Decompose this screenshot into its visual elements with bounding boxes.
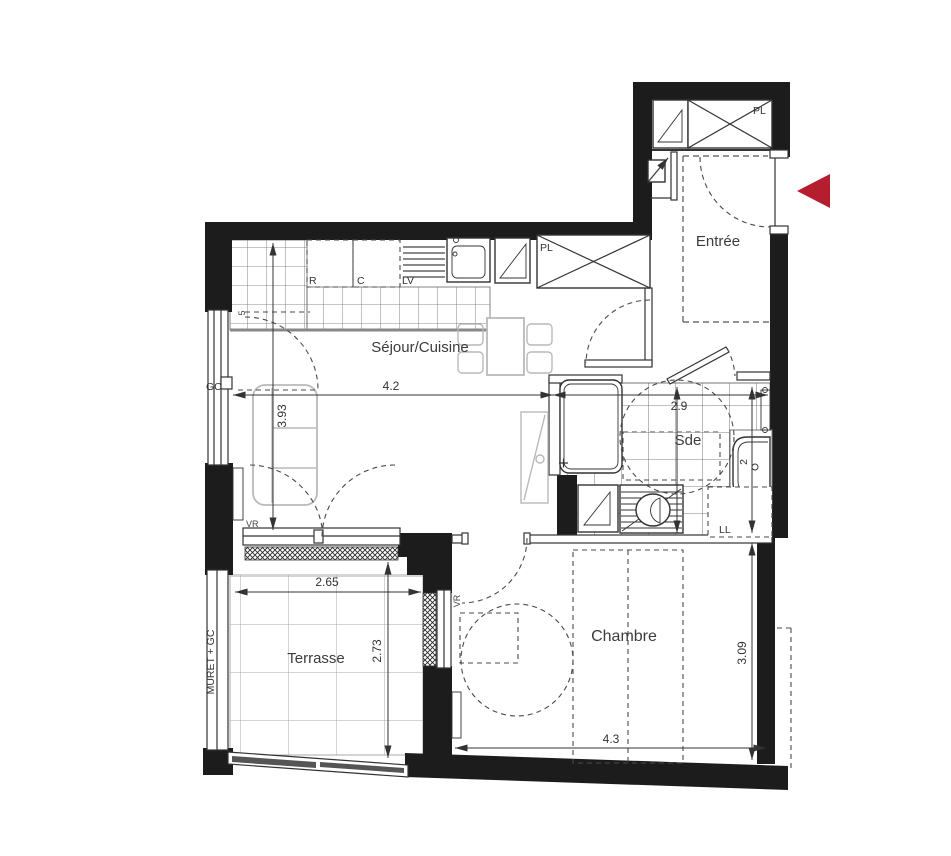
east-wall-upper [770,228,788,538]
shower [560,380,622,473]
sejour-partition-h [585,360,652,367]
chair-right2 [527,352,552,373]
label-basin-code: 2 [738,459,750,465]
entry-top-wall [633,82,790,100]
sejour-window-handle [221,377,232,389]
entrance-jamb-bottom [770,226,788,234]
chambre-turning-circle [461,604,573,716]
desk-knob [536,455,544,463]
radiator-chambre [452,692,461,738]
label-shutter-chambre: VR [452,594,462,607]
sde-west-wall [549,380,560,475]
label-cooktop: C [357,275,365,287]
label-guardrail: GC [206,381,222,393]
radiator-sejour [233,468,243,520]
chambre-west-wall [423,666,452,755]
dim-sde-w: 2.9 [671,399,688,413]
northwest-corner [205,222,232,312]
dim-terrasse-w: 2.65 [315,575,339,589]
label-terrace-wall: MURET + GC [205,629,217,694]
room-label-sde: Sde [675,432,702,449]
label-shutter-sejour: VR [246,519,259,529]
toilet-bowl [636,494,670,526]
dishwasher-lines [403,247,445,277]
washing-machine-zone [708,487,772,537]
railing [228,752,408,777]
duct-entry [653,100,688,148]
desk-diagonal [524,415,545,500]
south-wall [405,753,788,790]
dim-sejour-w: 4.2 [383,379,400,393]
label-fridge: R [309,275,317,287]
room-label-terrasse: Terrasse [287,650,345,667]
label-dishwasher: LV [402,275,414,287]
floor-plan-svg: 4.2 2.9 3.93 2.65 2.73 3.09 4.3 Entrée S… [0,0,951,856]
door-jamb-1 [462,533,468,544]
dim-chambre-h: 3.09 [735,641,749,665]
label-washing-machine: LL [719,524,731,536]
bath-wall-chunk [557,475,577,537]
label-window-code: 5 [237,310,247,315]
room-label-sejour: Séjour/Cuisine [371,339,469,356]
junction-wall-b [407,557,452,575]
junction-wall-a [398,533,452,557]
dim-terrasse-h: 2.73 [370,639,384,663]
sde-door-leaf [667,347,729,384]
label-closet-sejour: PL [540,242,553,254]
label-closet-entry: PL [753,105,766,117]
bay-right-swing [322,465,395,538]
chambre-window-sill [423,593,436,666]
sink [447,238,490,282]
sde-north-wall-right [737,372,770,380]
chair-right1 [527,324,552,345]
sejour-door-swing [586,300,650,363]
chambre-door-swing [462,538,527,603]
bay-door-sill [245,547,398,560]
entrance-door-swing [700,157,770,227]
duct-sejour [495,238,530,283]
room-label-chambre: Chambre [591,628,657,645]
sofa [253,385,317,505]
chambre-clearance [460,613,518,663]
dim-chambre-w: 4.3 [603,732,620,746]
west-wall-mid [205,463,233,575]
dim-sejour-h: 3.93 [275,404,289,428]
room-label-entree: Entrée [696,233,740,250]
dining-table [487,318,524,375]
east-wall-lower [757,538,775,764]
entrance-arrow-icon [797,174,830,208]
overhang-line [777,628,791,772]
floor-plan: 4.2 2.9 3.93 2.65 2.73 3.09 4.3 Entrée S… [0,0,951,856]
entry-partition [671,152,677,200]
entrance-jamb-top [770,150,788,158]
entry-right-wall [770,82,790,157]
toilet [620,485,683,533]
